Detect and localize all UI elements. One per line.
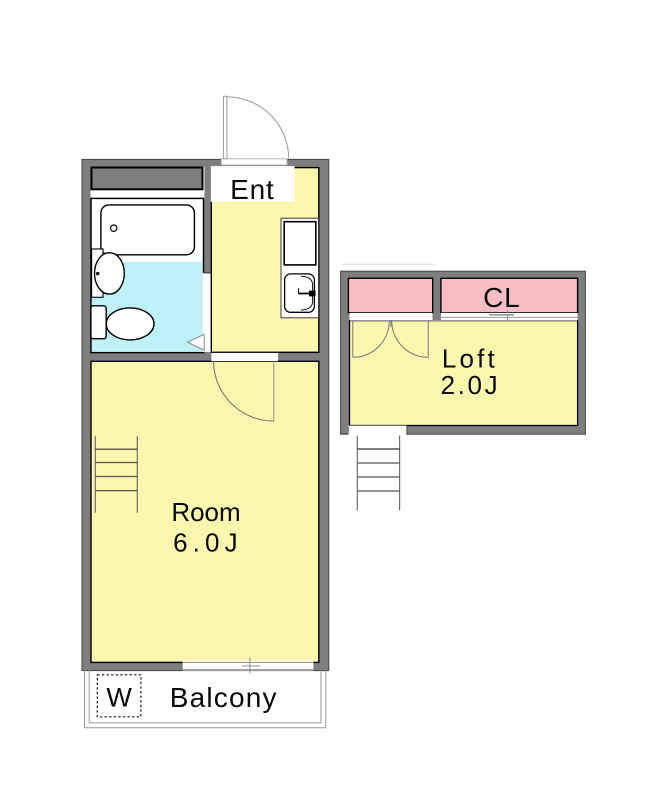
svg-text:6.0J: 6.0J (173, 528, 243, 558)
svg-text:W: W (106, 683, 132, 713)
svg-text:Ent: Ent (230, 174, 274, 205)
svg-text:2.0J: 2.0J (441, 370, 501, 400)
svg-text:Loft: Loft (442, 343, 498, 373)
svg-text:CL: CL (483, 282, 520, 313)
svg-text:Room: Room (171, 497, 240, 527)
svg-text:Balcony: Balcony (170, 682, 278, 713)
